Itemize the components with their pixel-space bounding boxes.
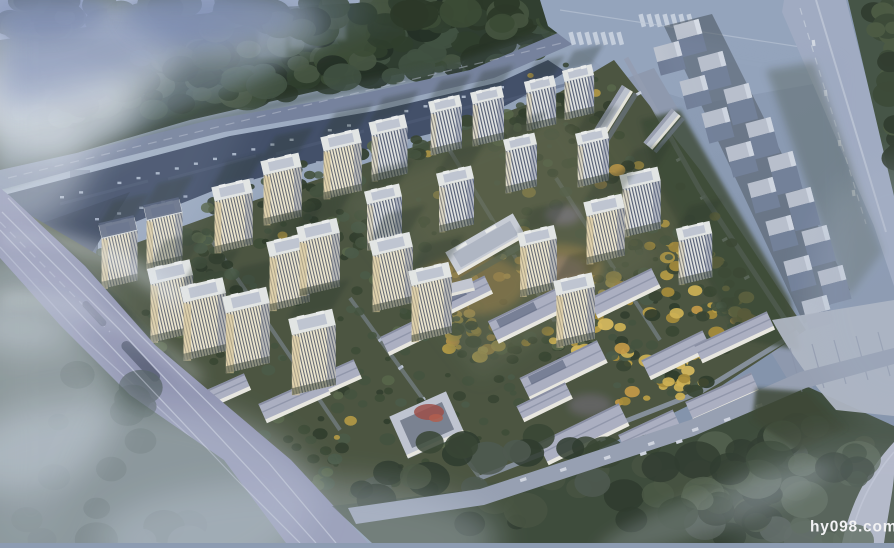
svg-text:hy098.com: hy098.com [810, 519, 894, 536]
